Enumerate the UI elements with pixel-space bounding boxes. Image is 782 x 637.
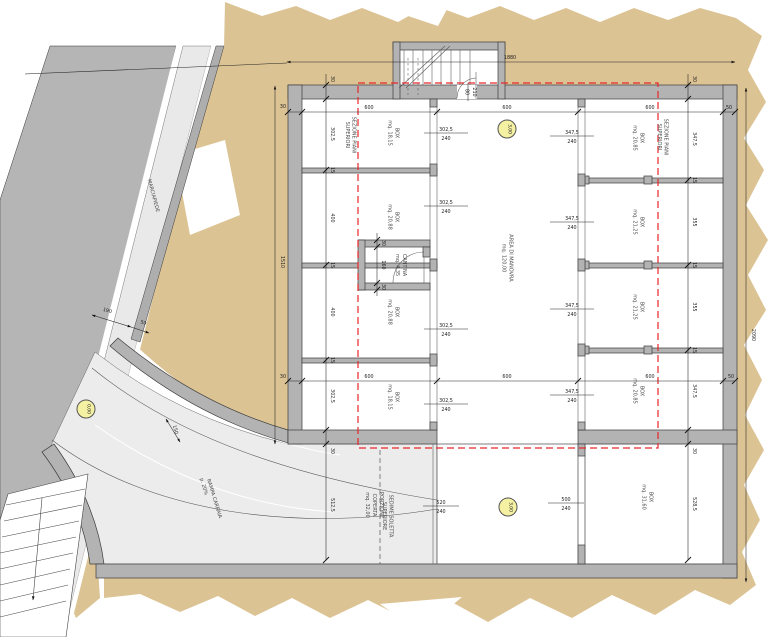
dim-rchain-2: 355: [691, 217, 697, 226]
label-box-left-4-name: BOX: [394, 392, 400, 403]
dim-row2-30: 30: [280, 374, 286, 380]
dim-overall-right: 2090: [750, 329, 756, 341]
label-box-right-1-area: mq. 20,85: [632, 125, 638, 151]
label-box-left-2-name: BOX: [394, 212, 400, 223]
label-box-left-3-area: mq. 20,88: [387, 299, 393, 325]
level-value: 0,00: [86, 404, 92, 414]
dim-row2-50: 50: [728, 374, 734, 380]
door-w: 302,5: [439, 398, 453, 404]
dim-lchain-5: 15: [329, 357, 335, 363]
door-h: 240: [441, 407, 450, 413]
dim-overall-top: 1880: [504, 55, 516, 61]
door-w: 80: [464, 89, 470, 95]
dim-rchain-4: 355: [691, 302, 697, 311]
dim-cantina-1: 160: [380, 260, 386, 269]
door-w: 302,5: [439, 127, 453, 133]
dim-row2-600c: 600: [645, 374, 654, 380]
label-cantina-area: mq. 4,35: [394, 254, 400, 276]
door-h: 240: [567, 398, 576, 404]
wall-mid-left: [288, 430, 437, 444]
level-marker-upper: 3,00: [498, 120, 516, 138]
wall-right: [723, 85, 737, 578]
dim-rbot-528: 528,5: [691, 497, 697, 511]
door-w: 520: [436, 500, 445, 506]
label-porzione-area: mq. 32,00: [364, 492, 370, 518]
dim-row1-50: 50: [726, 105, 732, 111]
dim-row1-30: 30: [280, 104, 286, 110]
label-box-right-2-area: mq. 21,25: [632, 209, 638, 235]
level-value: 3,00: [508, 502, 514, 512]
label-sedime-line2: SUPERIORE: [381, 502, 387, 531]
door-h: 240: [441, 209, 450, 215]
dim-lchain-2: 400: [329, 213, 335, 222]
label-cantina-name: CANTINA: [401, 254, 407, 277]
door-h: 240: [561, 506, 570, 512]
door-h: 240: [567, 225, 576, 231]
label-sezione-right-1: SEZIONE PIANI: [663, 119, 669, 156]
dim-overall-left: 1510: [279, 256, 285, 268]
door-h: 240: [436, 509, 445, 515]
label-sezione-left-2: SUPERIORI: [344, 122, 350, 149]
door-h: 240: [567, 312, 576, 318]
label-box-left-1-name: BOX: [394, 128, 400, 139]
label-box-bottom-area: mq. 31,60: [641, 484, 647, 510]
dim-lbot-30: 30: [329, 448, 335, 454]
level-marker-lower: 3,00: [499, 498, 517, 516]
door-w: 302,5: [439, 200, 453, 206]
door-w: 347,5: [565, 130, 579, 136]
dim-lchain-0: 302,5: [329, 127, 335, 141]
door-w: 302,5: [439, 323, 453, 329]
label-box-right-3-name: BOX: [639, 302, 645, 313]
label-manovra-name: AREA DI MANOVRA: [508, 234, 514, 282]
label-box-right-4-area: mq. 20,85: [632, 378, 638, 404]
label-box-right-4-name: BOX: [639, 386, 645, 397]
label-porzione-line2: COPERTA: [371, 494, 377, 517]
dim-rchain-0: 347,5: [691, 132, 697, 146]
dim-rchain-6: 347,5: [691, 384, 697, 398]
dim-rwall-30: 30: [691, 76, 697, 82]
label-box-left-1-area: mq. 18,15: [387, 120, 393, 146]
door-h: 210: [471, 87, 477, 96]
door-w: 347,5: [565, 216, 579, 222]
dim-lchain-1: 15: [329, 167, 335, 173]
label-sezione-left-1: SEZIONE PIANI: [351, 117, 357, 154]
dim-rbot-30: 30: [691, 448, 697, 454]
dim-cantina-0: 30: [380, 240, 386, 246]
wall-top: [288, 85, 737, 99]
label-sedime-line1: SEDIME SOLETTA: [388, 495, 394, 538]
label-box-left-4-area: mq. 18,15: [387, 384, 393, 410]
label-manovra-area: mq. 120,00: [501, 244, 507, 273]
dim-row2-600a: 600: [364, 374, 373, 380]
level-value: 3,00: [507, 124, 513, 134]
dim-lchain-3: 15: [329, 262, 335, 268]
dim-row1-600a: 600: [364, 105, 373, 111]
dim-lbot-512: 512,5: [329, 498, 335, 512]
dim-row2-600b: 600: [502, 374, 511, 380]
dim-cantina-2: 30: [380, 284, 386, 290]
plan-canvas: 1880 2090 1510 30 600 600 600 50 30 600 …: [0, 0, 782, 637]
label-box-right-1-name: BOX: [639, 133, 645, 144]
level-marker-street: 0,00: [77, 400, 95, 418]
label-sezione-right-2: SUPERIORI: [656, 124, 662, 151]
floor-plan-drawing: 1880 2090 1510 30 600 600 600 50 30 600 …: [0, 0, 782, 637]
dim-rchain-5: 15: [691, 347, 697, 353]
label-box-right-2-name: BOX: [639, 217, 645, 228]
door-w: 347,5: [565, 389, 579, 395]
label-box-left-2-area: mq. 20,88: [387, 204, 393, 230]
label-box-right-3-area: mq. 21,25: [632, 294, 638, 320]
door-h: 240: [441, 136, 450, 142]
door-w: 347,5: [565, 303, 579, 309]
label-box-bottom-name: BOX: [648, 492, 654, 503]
dim-rchain-3: 15: [691, 262, 697, 268]
bottom-box-interior: [585, 444, 723, 564]
door-h: 240: [441, 332, 450, 338]
dim-row1-600c: 600: [645, 105, 654, 111]
door-h: 240: [567, 139, 576, 145]
label-box-left-3-name: BOX: [394, 307, 400, 318]
dim-rchain-1: 15: [691, 177, 697, 183]
door-w: 500: [561, 497, 570, 503]
dim-lwall-30: 30: [329, 76, 335, 82]
wall-left: [288, 85, 302, 444]
dim-lchain-4: 400: [329, 307, 335, 316]
wall-bottom: [96, 564, 737, 578]
dim-row1-600b: 600: [502, 105, 511, 111]
dim-lchain-6: 302,5: [329, 389, 335, 403]
